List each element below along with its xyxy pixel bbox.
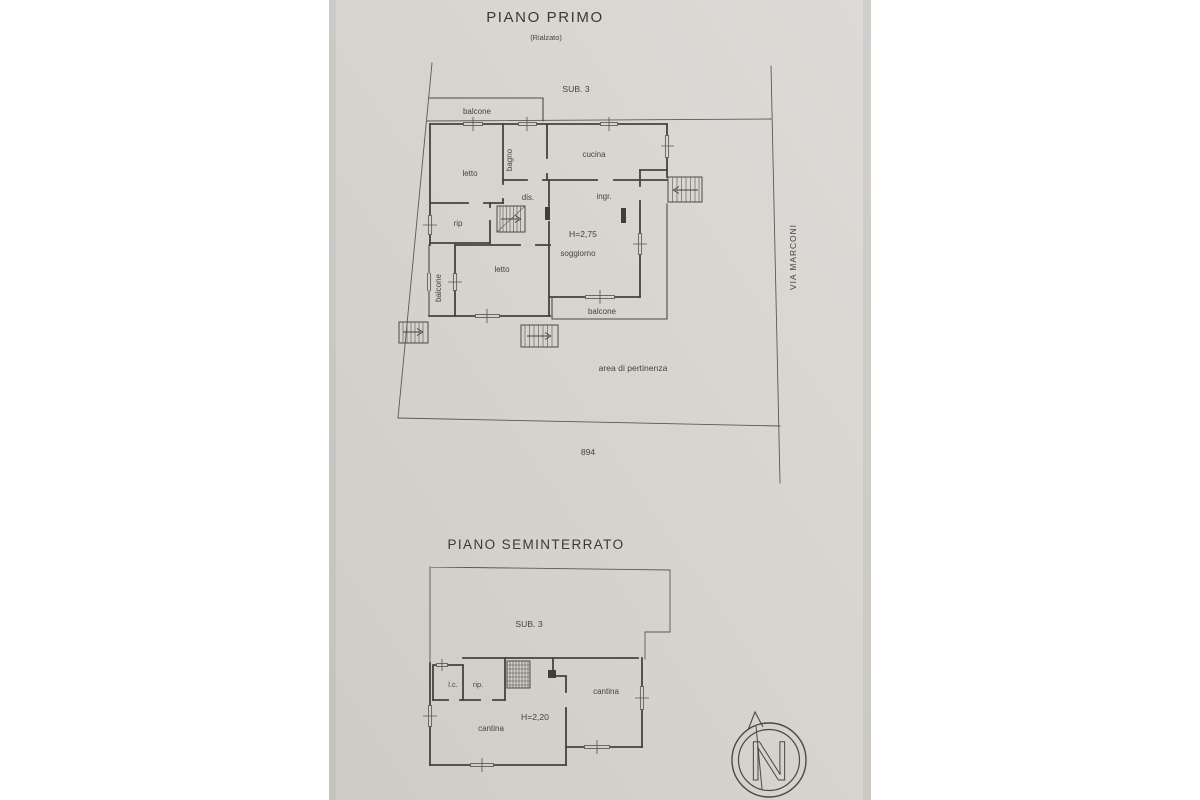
- room-label-balcone-bottom: balcone: [588, 307, 617, 316]
- paper-left-shadow: [329, 0, 336, 800]
- label-via-marconi: VIA MARCONI: [788, 224, 798, 290]
- door-leaf: [545, 207, 550, 220]
- room-label-ingr: ingr.: [596, 192, 611, 201]
- label-height-f1: H=2,75: [569, 229, 597, 239]
- room-label-balcone-left: balcone: [434, 273, 443, 302]
- room-label-letto-2: letto: [494, 265, 510, 274]
- room-label-rip-0: rip.: [473, 680, 483, 689]
- room-label-rip: rip: [454, 219, 463, 228]
- room-label-cantina-left: cantina: [478, 724, 504, 733]
- label-area-di-pertinenza: area di pertinenza: [599, 363, 668, 373]
- room-label-lc: l.c.: [448, 680, 457, 689]
- floor1-subtitle: (Rialzato): [530, 33, 562, 42]
- floor1-sub-label: SUB. 3: [562, 84, 589, 94]
- room-label-balcone-top: balcone: [463, 107, 492, 116]
- paper-right-shadow: [863, 0, 871, 800]
- floor0-sub-label: SUB. 3: [515, 619, 542, 629]
- floor1-title: PIANO PRIMO: [486, 9, 604, 26]
- room-label-cantina-right: cantina: [593, 687, 619, 696]
- floor0-title: PIANO SEMINTERRATO: [448, 537, 625, 552]
- compass-north-letter: N: [749, 729, 789, 792]
- floor-plan-sheet: PIANO PRIMO (Rialzato) SUB. 3: [0, 0, 1200, 800]
- room-label-soggiorno: soggiorno: [560, 249, 596, 258]
- label-height-f0: H=2,20: [521, 712, 549, 722]
- room-label-letto-1: letto: [462, 169, 478, 178]
- room-label-cucina: cucina: [582, 150, 606, 159]
- label-parcel-894: 894: [581, 447, 596, 457]
- photo-background: PIANO PRIMO (Rialzato) SUB. 3: [0, 0, 1200, 800]
- room-label-bagno: bagno: [505, 148, 514, 171]
- door-leaf: [548, 670, 556, 678]
- room-label-dis: dis.: [522, 193, 534, 202]
- door-leaf: [621, 208, 626, 223]
